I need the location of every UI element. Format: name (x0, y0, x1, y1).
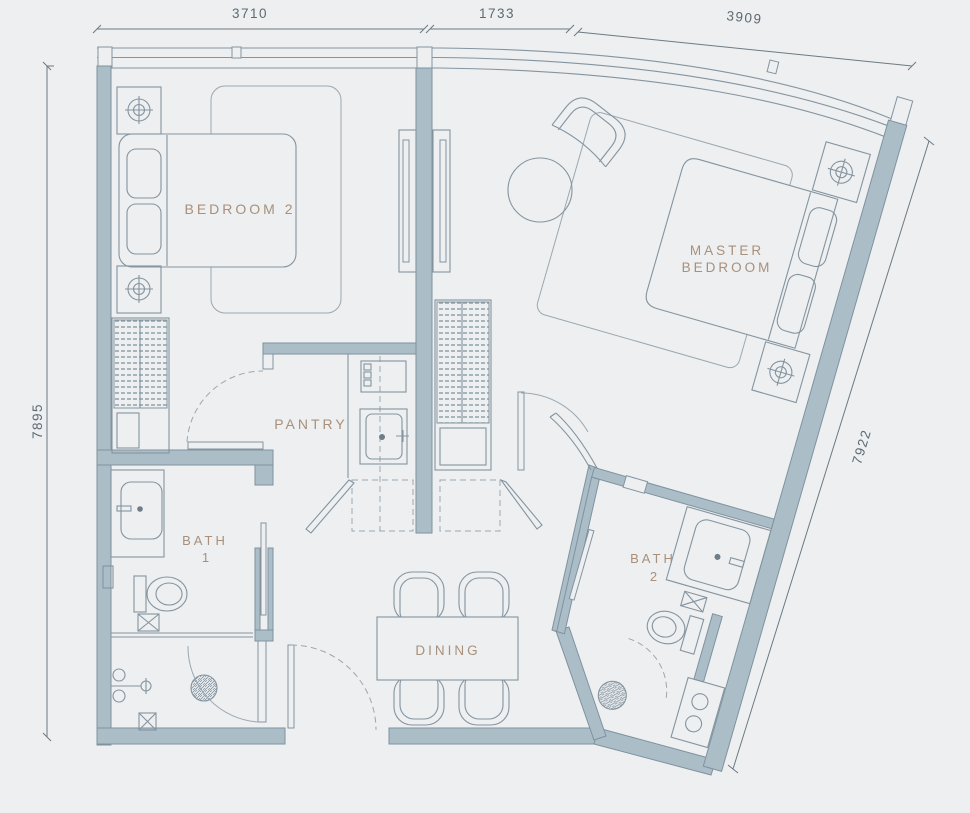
wall-bottom-middle (389, 728, 600, 744)
wall-pocket (268, 548, 273, 632)
wall-left (97, 66, 111, 745)
floor-plan-drawing: 3710 1733 3909 7895 7922 (0, 0, 970, 813)
sliding-panel-mirror (440, 140, 446, 262)
wall-bath1-top (97, 450, 273, 465)
floor-plan-page: 3710 1733 3909 7895 7922 (0, 0, 970, 813)
dim-top-left: 3710 (232, 6, 268, 21)
bath1-label-line2: 1 (202, 550, 212, 565)
wall-interior-vertical (416, 68, 432, 533)
sliding-door-panel (261, 523, 266, 615)
wall-bath1-east-stub (255, 465, 273, 485)
window-mullion-icon (232, 47, 241, 58)
door-jamb (263, 354, 273, 369)
wardrobe-hatch (437, 302, 489, 423)
faucet-icon (379, 434, 385, 440)
column (417, 47, 432, 68)
column (98, 47, 112, 68)
bath1-label-line1: BATH (182, 533, 228, 548)
master-label-line2: BEDROOM (682, 260, 773, 275)
door-leaf (258, 641, 266, 722)
bath2-label-line2: 2 (650, 569, 660, 584)
bedroom2-label: BEDROOM 2 (184, 201, 295, 217)
door-leaf (188, 442, 263, 449)
wall-pantry (263, 343, 416, 354)
wall-bottom-left (97, 728, 285, 744)
master-label-line1: MASTER (690, 243, 764, 258)
bath2-label-line1: BATH (630, 551, 676, 566)
dining-label: DINING (415, 643, 480, 658)
sliding-panel-mirror (403, 140, 409, 262)
wall-shower-jamb (255, 630, 273, 641)
wall-pocket (255, 548, 260, 632)
door-leaf (288, 645, 294, 728)
dim-left: 7895 (30, 403, 45, 439)
pantry-label: PANTRY (274, 416, 348, 432)
door-leaf (518, 392, 524, 470)
dim-top-middle: 1733 (479, 6, 515, 21)
